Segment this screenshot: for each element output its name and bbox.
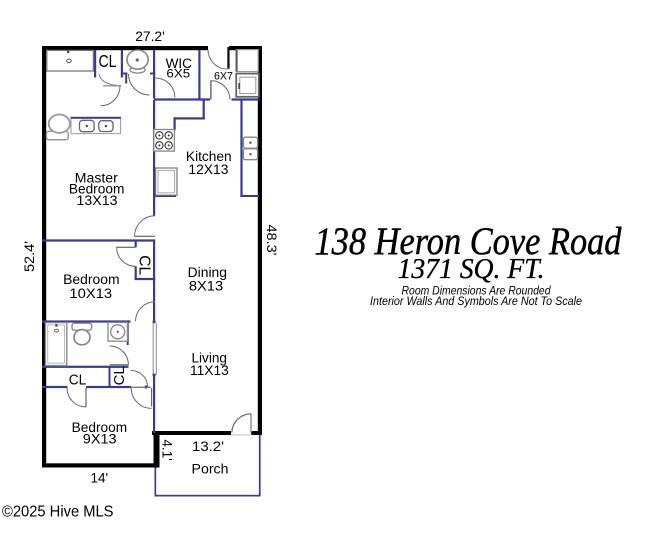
svg-text:14': 14' bbox=[91, 471, 109, 486]
svg-text:Porch: Porch bbox=[192, 461, 229, 476]
svg-text:CL: CL bbox=[99, 51, 117, 71]
svg-text:10X13: 10X13 bbox=[69, 286, 112, 301]
svg-text:52.4': 52.4' bbox=[22, 241, 37, 272]
svg-text:CL: CL bbox=[69, 373, 87, 389]
svg-text:11X13: 11X13 bbox=[190, 363, 229, 378]
svg-text:13X13: 13X13 bbox=[77, 193, 118, 208]
svg-text:12X13: 12X13 bbox=[188, 162, 228, 177]
svg-text:48.3': 48.3' bbox=[264, 225, 279, 256]
svg-text:6X5: 6X5 bbox=[166, 68, 190, 80]
svg-text:Interior Walls And Symbols Are: Interior Walls And Symbols Are Not To Sc… bbox=[370, 296, 582, 308]
svg-text:13.2': 13.2' bbox=[192, 439, 224, 454]
svg-text:4.1': 4.1' bbox=[159, 439, 174, 460]
svg-text:27.2': 27.2' bbox=[135, 29, 165, 44]
svg-text:1371 SQ. FT.: 1371 SQ. FT. bbox=[398, 254, 545, 285]
svg-text:8X13: 8X13 bbox=[189, 278, 223, 293]
svg-text:©2025 Hive MLS: ©2025 Hive MLS bbox=[2, 504, 114, 521]
svg-text:6X7: 6X7 bbox=[214, 71, 233, 83]
svg-text:9X13: 9X13 bbox=[83, 432, 117, 447]
svg-text:Bedroom: Bedroom bbox=[63, 272, 120, 287]
svg-text:CL: CL bbox=[135, 255, 152, 275]
svg-text:CL: CL bbox=[111, 366, 128, 385]
